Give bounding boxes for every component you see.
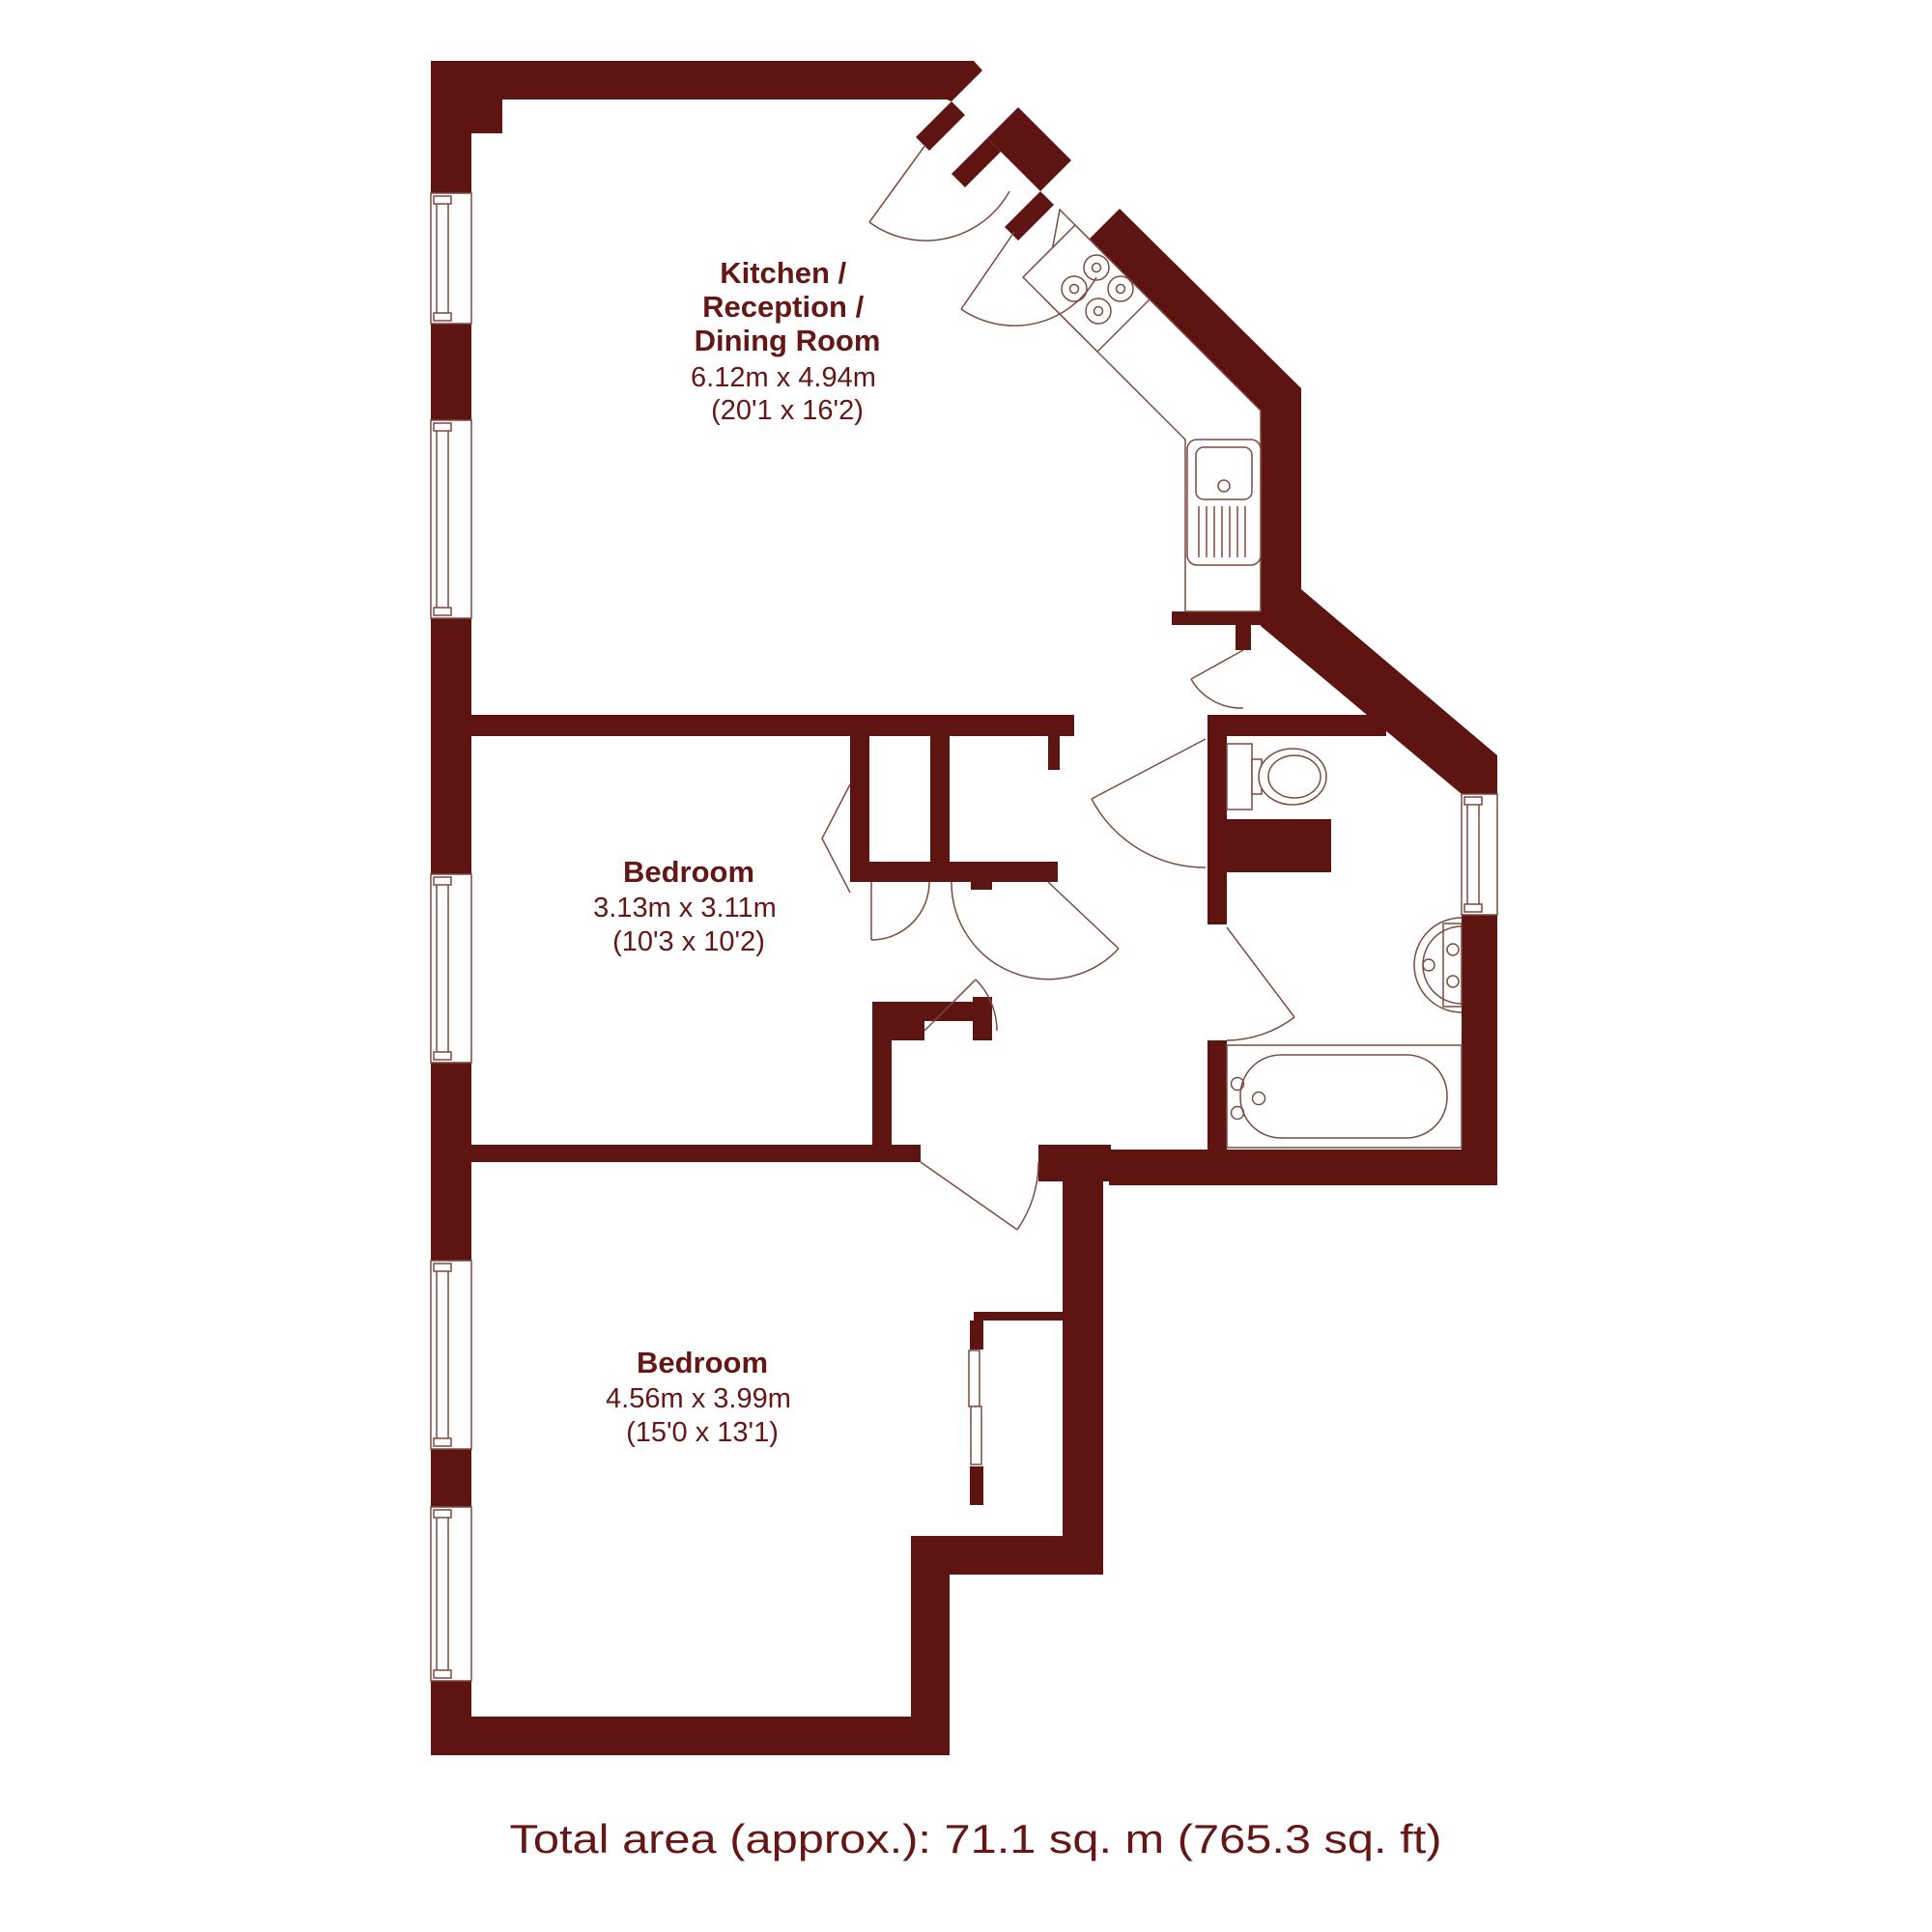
bedroom-2-door-icon: [921, 1162, 1038, 1230]
bathroom-fixtures: [1227, 744, 1462, 1148]
sliding-wardrobe-icon: [969, 1350, 981, 1464]
bedroom1-corner-nib: [892, 1021, 924, 1040]
kitchen-door-stub: [1236, 625, 1251, 650]
wall-left-3: [431, 618, 471, 874]
jamb-stub-2: [952, 138, 1001, 187]
wardrobe-wall-top: [974, 1312, 1063, 1321]
bifold-door-icon: [822, 784, 850, 893]
bathroom-door-icon: [1227, 927, 1294, 1040]
closet-door-right-icon: [952, 882, 1119, 980]
closet-stub-right: [1048, 736, 1060, 770]
window-kitchen-1: [431, 193, 471, 324]
room-labels: Kitchen / Reception / Dining Room 6.12m …: [593, 256, 884, 1448]
wall-bottom: [431, 1717, 950, 1755]
windows: [431, 193, 1497, 1681]
floor-plan-svg: Kitchen / Reception / Dining Room 6.12m …: [0, 0, 1932, 1932]
kitchen-door-icon: [1191, 650, 1243, 708]
kitchen-dims: 6.12m x 4.94m (20'1 x 16'2): [691, 362, 884, 426]
jamb-stub-1: [916, 101, 965, 151]
bedroom-2-label: Bedroom: [637, 1346, 768, 1379]
wall-kitchen-divider: [471, 715, 1074, 736]
wall-se-step: [911, 1575, 950, 1719]
wall-top: [431, 61, 982, 101]
wall-bathroom-west-2: [1207, 1040, 1227, 1150]
bedroom1-corner-wall-v: [872, 1002, 892, 1145]
floor-plan-page: Kitchen / Reception / Dining Room 6.12m …: [0, 0, 1932, 1932]
sink-drainer-icon: [1187, 440, 1261, 565]
bathtub-icon: [1227, 1045, 1462, 1148]
bedroom-1-label: Bedroom: [623, 855, 754, 889]
bedroom-1-dims: 3.13m x 3.11m (10'3 x 10'2): [593, 893, 784, 957]
wall-left-2: [431, 324, 471, 420]
window-bedroom2-2: [431, 1507, 471, 1681]
window-bedroom2-1: [431, 1261, 471, 1449]
closet-wall-front: [850, 862, 1058, 882]
kitchen-label: Kitchen / Reception / Dining Room: [695, 256, 881, 357]
wall-left-5: [431, 1449, 471, 1507]
closet-stub-small: [971, 882, 992, 890]
wall-bedrooms-divider: [471, 1145, 921, 1162]
wall-bathroom-bottom: [1109, 1150, 1497, 1185]
wardrobe-jamb-bottom: [970, 1466, 983, 1505]
wall-bathroom-top: [1207, 715, 1386, 736]
wall-hall-cap: [1038, 1145, 1111, 1181]
window-kitchen-2: [431, 420, 471, 618]
window-bathroom: [1462, 794, 1497, 915]
basin-icon: [1414, 918, 1462, 1012]
wall-bathroom-right: [1462, 915, 1497, 1150]
closet-wall-mid: [930, 736, 950, 862]
bedroom1-corner-block: [973, 997, 992, 1040]
exterior-walls: [431, 61, 1497, 1755]
wall-east-lower: [1063, 1145, 1103, 1541]
wall-bathroom-stub: [1207, 819, 1331, 872]
closet-wall-left: [850, 736, 869, 862]
wall-kitchen-right: [1261, 415, 1301, 589]
wall-diagonal-a: [987, 107, 1071, 191]
hall-bathroom-lobby-door-icon: [1092, 739, 1206, 867]
wall-left-4: [431, 1063, 471, 1261]
toilet-icon: [1227, 744, 1326, 810]
bedroom-2-dims: 4.56m x 3.99m (15'0 x 13'1): [606, 1383, 799, 1448]
total-area-text: Total area (approx.): 71.1 sq. m (765.3 …: [510, 1816, 1442, 1861]
window-bedroom1: [431, 874, 471, 1063]
wall-kitchen-se: [1172, 611, 1263, 625]
wardrobe-jamb-top: [970, 1321, 983, 1350]
jamb-stub-3: [1005, 191, 1054, 241]
wall-left-1: [431, 99, 471, 193]
wall-closet-bottom: [911, 1536, 1103, 1575]
closet-door-left-icon: [871, 882, 929, 940]
